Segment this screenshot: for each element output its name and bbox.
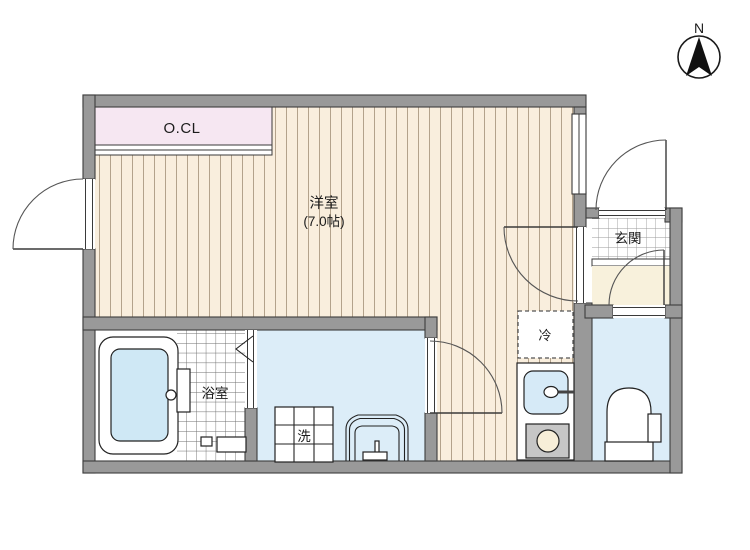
- toilet-bowl: [607, 388, 651, 443]
- doorway-main: [574, 227, 586, 303]
- wall-mainroom-south: [83, 317, 437, 330]
- doorway-washroom: [425, 338, 437, 413]
- wall-top: [83, 95, 586, 107]
- refrigerator-label: 冷: [538, 328, 551, 343]
- bathtub-drain-knob: [166, 390, 176, 400]
- door-swing-west: [13, 179, 83, 249]
- floor-plan: 洋室 (7.0帖) O.CL 玄関 冷 浴室 洗 N: [0, 0, 750, 550]
- basin-faucet-stem: [375, 441, 379, 453]
- floor-plan-drawing: 洋室 (7.0帖) O.CL 玄関 冷 浴室 洗 N: [0, 0, 750, 550]
- doorway-toilet: [613, 305, 665, 318]
- doorway-bathroom: [245, 330, 257, 408]
- washing-machine-label: 洗: [297, 429, 311, 444]
- bathtub-inner: [111, 349, 168, 441]
- doorway-west: [83, 179, 95, 249]
- main-room-size-label: (7.0帖): [303, 214, 344, 229]
- main-room-label: 洋室: [310, 195, 339, 212]
- toilet-tank: [605, 442, 653, 461]
- window-main-room-east: [572, 114, 586, 194]
- bathroom-threshold: [217, 437, 246, 452]
- wall-bottom: [83, 461, 682, 473]
- door-swing-front: [596, 140, 666, 210]
- entrance-label: 玄関: [615, 230, 642, 246]
- kitchen-counter: [517, 363, 574, 460]
- doorway-front: [599, 208, 665, 218]
- wall-left-lower: [83, 249, 95, 473]
- wall-entrance-post-left: [586, 208, 599, 218]
- entrance-step: [592, 259, 670, 266]
- wall-right-outer: [670, 208, 682, 473]
- wall-right-seg3: [574, 303, 592, 461]
- toilet-side-unit: [648, 414, 661, 442]
- stove-burner: [537, 430, 559, 452]
- door-west-balcony: [13, 179, 95, 249]
- wall-washroom-kitchen-top: [425, 317, 437, 338]
- wall-hall-toilet-left: [585, 305, 613, 318]
- wall-hall-toilet-right: [665, 305, 682, 318]
- bathroom-drain: [201, 437, 212, 446]
- wall-bath-washroom-bottom: [245, 408, 257, 461]
- bathtub: [99, 337, 190, 454]
- wall-left-upper: [83, 95, 95, 179]
- closet-label: O.CL: [163, 120, 200, 137]
- wall-washroom-kitchen-bottom: [425, 413, 437, 461]
- compass-north-label: N: [694, 20, 704, 36]
- faucet-handle: [544, 387, 558, 398]
- north-compass: [678, 36, 720, 78]
- wall-right-seg2: [574, 192, 586, 227]
- bathroom-label: 浴室: [202, 385, 229, 401]
- hall-floor: [592, 266, 670, 305]
- bathtub-faucet-panel: [177, 369, 190, 412]
- basin-faucet-base: [363, 452, 387, 460]
- door-front-entrance: [596, 140, 666, 218]
